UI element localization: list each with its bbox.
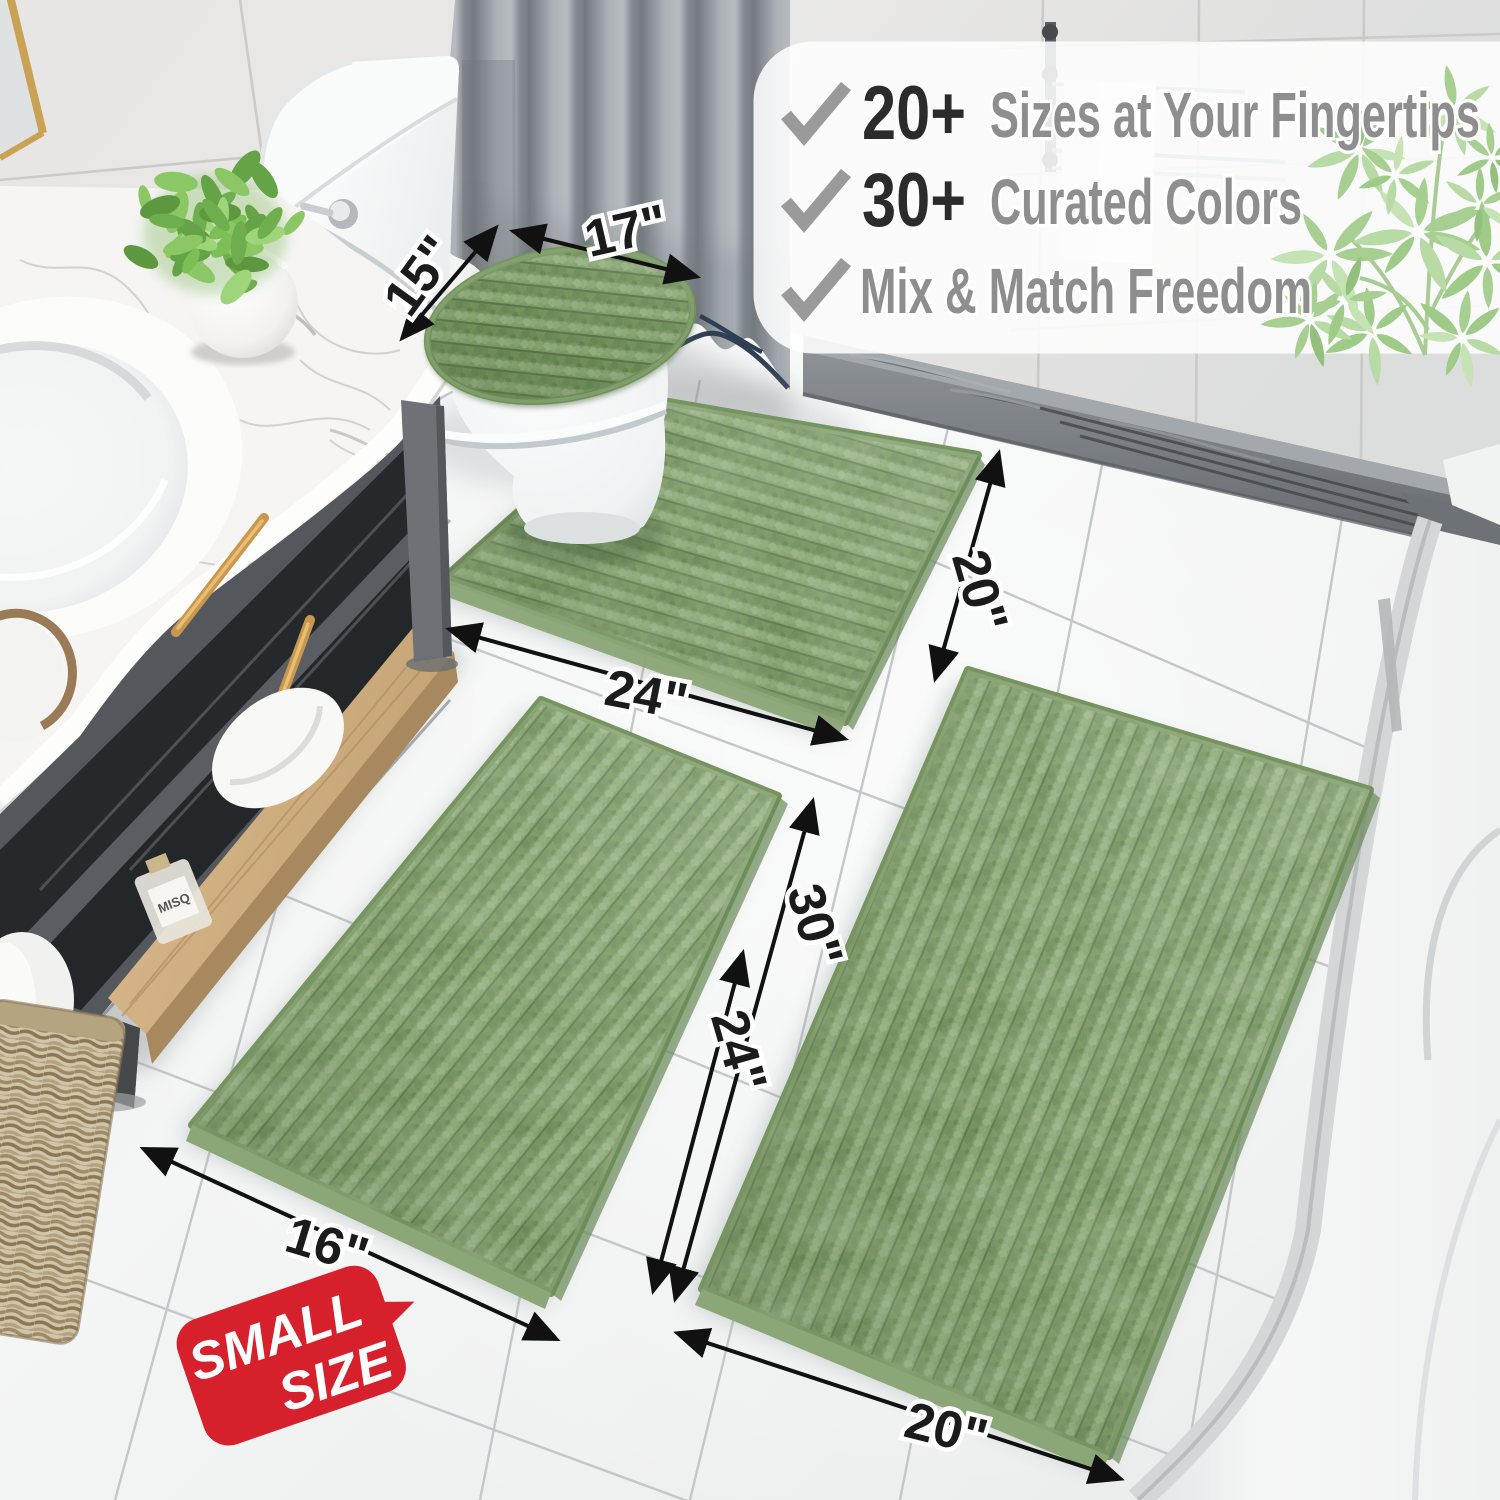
svg-text:Sizes at Your Fingertips: Sizes at Your Fingertips xyxy=(990,79,1480,151)
svg-text:Mix & Match Freedom: Mix & Match Freedom xyxy=(860,255,1312,327)
svg-text:Curated Colors: Curated Colors xyxy=(990,166,1302,238)
svg-text:30+: 30+ xyxy=(862,158,966,243)
svg-text:20+: 20+ xyxy=(862,71,966,156)
